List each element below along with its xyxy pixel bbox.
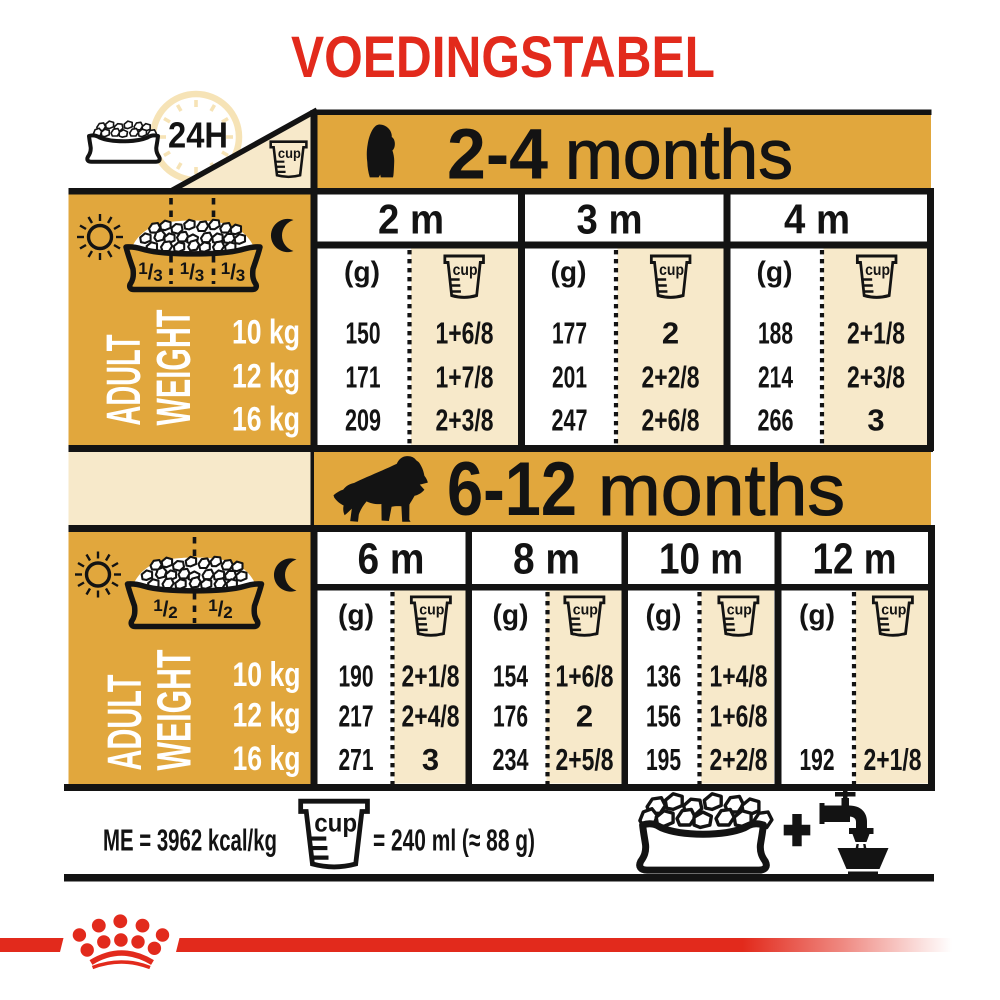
svg-text:1+7/8: 1+7/8 (436, 360, 494, 395)
svg-text:214: 214 (758, 360, 794, 395)
svg-text:WEIGHT: WEIGHT (148, 310, 201, 426)
svg-text:ADULT: ADULT (99, 675, 152, 771)
svg-text:2: 2 (223, 603, 232, 622)
svg-text:3: 3 (236, 266, 245, 285)
svg-text:150: 150 (346, 316, 381, 351)
svg-text:156: 156 (646, 699, 681, 734)
svg-text:8 m: 8 m (513, 535, 580, 584)
svg-text:2+5/8: 2+5/8 (556, 742, 614, 777)
svg-text:171: 171 (346, 360, 381, 395)
svg-text:2 m: 2 m (378, 196, 444, 243)
svg-text:2: 2 (576, 699, 593, 734)
svg-text:2-4: 2-4 (447, 116, 548, 195)
svg-text:1+4/8: 1+4/8 (710, 659, 768, 694)
svg-text:12 kg: 12 kg (233, 697, 301, 735)
svg-text:10 kg: 10 kg (232, 314, 300, 352)
svg-text:266: 266 (758, 403, 794, 438)
svg-text:234: 234 (493, 742, 530, 777)
svg-text:2+2/8: 2+2/8 (642, 360, 700, 395)
svg-text:2+4/8: 2+4/8 (402, 699, 460, 734)
svg-text:WEIGHT: WEIGHT (149, 650, 202, 771)
svg-text:(g): (g) (551, 257, 587, 289)
svg-text:16 kg: 16 kg (232, 401, 300, 439)
svg-text:154: 154 (493, 659, 529, 694)
svg-text:1: 1 (180, 259, 189, 278)
svg-text:3: 3 (422, 742, 439, 777)
svg-text:2+2/8: 2+2/8 (710, 742, 768, 777)
svg-text:= 240 ml (≈ 88 g): = 240 ml (≈ 88 g) (373, 823, 535, 858)
svg-text:16 kg: 16 kg (233, 740, 301, 778)
svg-text:ME = 3962 kcal/kg: ME = 3962 kcal/kg (103, 823, 277, 858)
svg-text:1: 1 (138, 259, 147, 278)
svg-text:2+3/8: 2+3/8 (847, 360, 905, 395)
svg-text:201: 201 (552, 360, 587, 395)
svg-text:6 m: 6 m (358, 535, 425, 584)
svg-text:(g): (g) (338, 600, 374, 632)
svg-text:2+6/8: 2+6/8 (642, 403, 700, 438)
svg-text:24H: 24H (168, 115, 228, 156)
svg-text:3: 3 (153, 266, 162, 285)
svg-text:192: 192 (800, 742, 835, 777)
svg-text:(g): (g) (493, 600, 529, 632)
svg-text:2: 2 (662, 316, 679, 351)
svg-text:2: 2 (168, 603, 177, 622)
svg-text:2+3/8: 2+3/8 (436, 403, 494, 438)
svg-text:10 m: 10 m (659, 535, 743, 584)
svg-text:177: 177 (552, 316, 587, 351)
svg-text:195: 195 (646, 742, 681, 777)
svg-text:3 m: 3 m (577, 196, 643, 243)
svg-text:1: 1 (153, 596, 162, 615)
svg-text:209: 209 (345, 403, 381, 438)
svg-text:1+6/8: 1+6/8 (436, 316, 494, 351)
svg-text:3: 3 (195, 266, 204, 285)
svg-text:188: 188 (758, 316, 793, 351)
svg-text:1: 1 (208, 596, 217, 615)
svg-text:6-12: 6-12 (447, 447, 577, 532)
svg-text:(g): (g) (344, 257, 380, 289)
svg-text:2+1/8: 2+1/8 (864, 742, 922, 777)
svg-text:(g): (g) (646, 600, 682, 632)
svg-text:(g): (g) (799, 600, 835, 632)
svg-text:190: 190 (339, 659, 374, 694)
svg-text:ADULT: ADULT (98, 335, 151, 426)
svg-text:217: 217 (339, 699, 374, 734)
svg-text:(g): (g) (757, 257, 793, 289)
svg-text:4 m: 4 m (784, 196, 850, 243)
svg-text:12 m: 12 m (813, 535, 897, 584)
svg-text:271: 271 (339, 742, 374, 777)
svg-text:12 kg: 12 kg (232, 358, 300, 396)
svg-text:2+1/8: 2+1/8 (847, 316, 905, 351)
svg-text:2+1/8: 2+1/8 (402, 659, 460, 694)
svg-text:months: months (598, 451, 845, 531)
svg-text:247: 247 (552, 403, 588, 438)
svg-text:136: 136 (646, 659, 681, 694)
svg-text:3: 3 (867, 403, 884, 438)
svg-text:1+6/8: 1+6/8 (556, 659, 614, 694)
svg-text:VOEDINGSTABEL: VOEDINGSTABEL (291, 25, 715, 90)
svg-text:10 kg: 10 kg (233, 656, 301, 694)
svg-text:176: 176 (493, 699, 528, 734)
svg-text:1: 1 (221, 259, 230, 278)
svg-text:1+6/8: 1+6/8 (710, 699, 768, 734)
svg-text:months: months (565, 116, 793, 194)
